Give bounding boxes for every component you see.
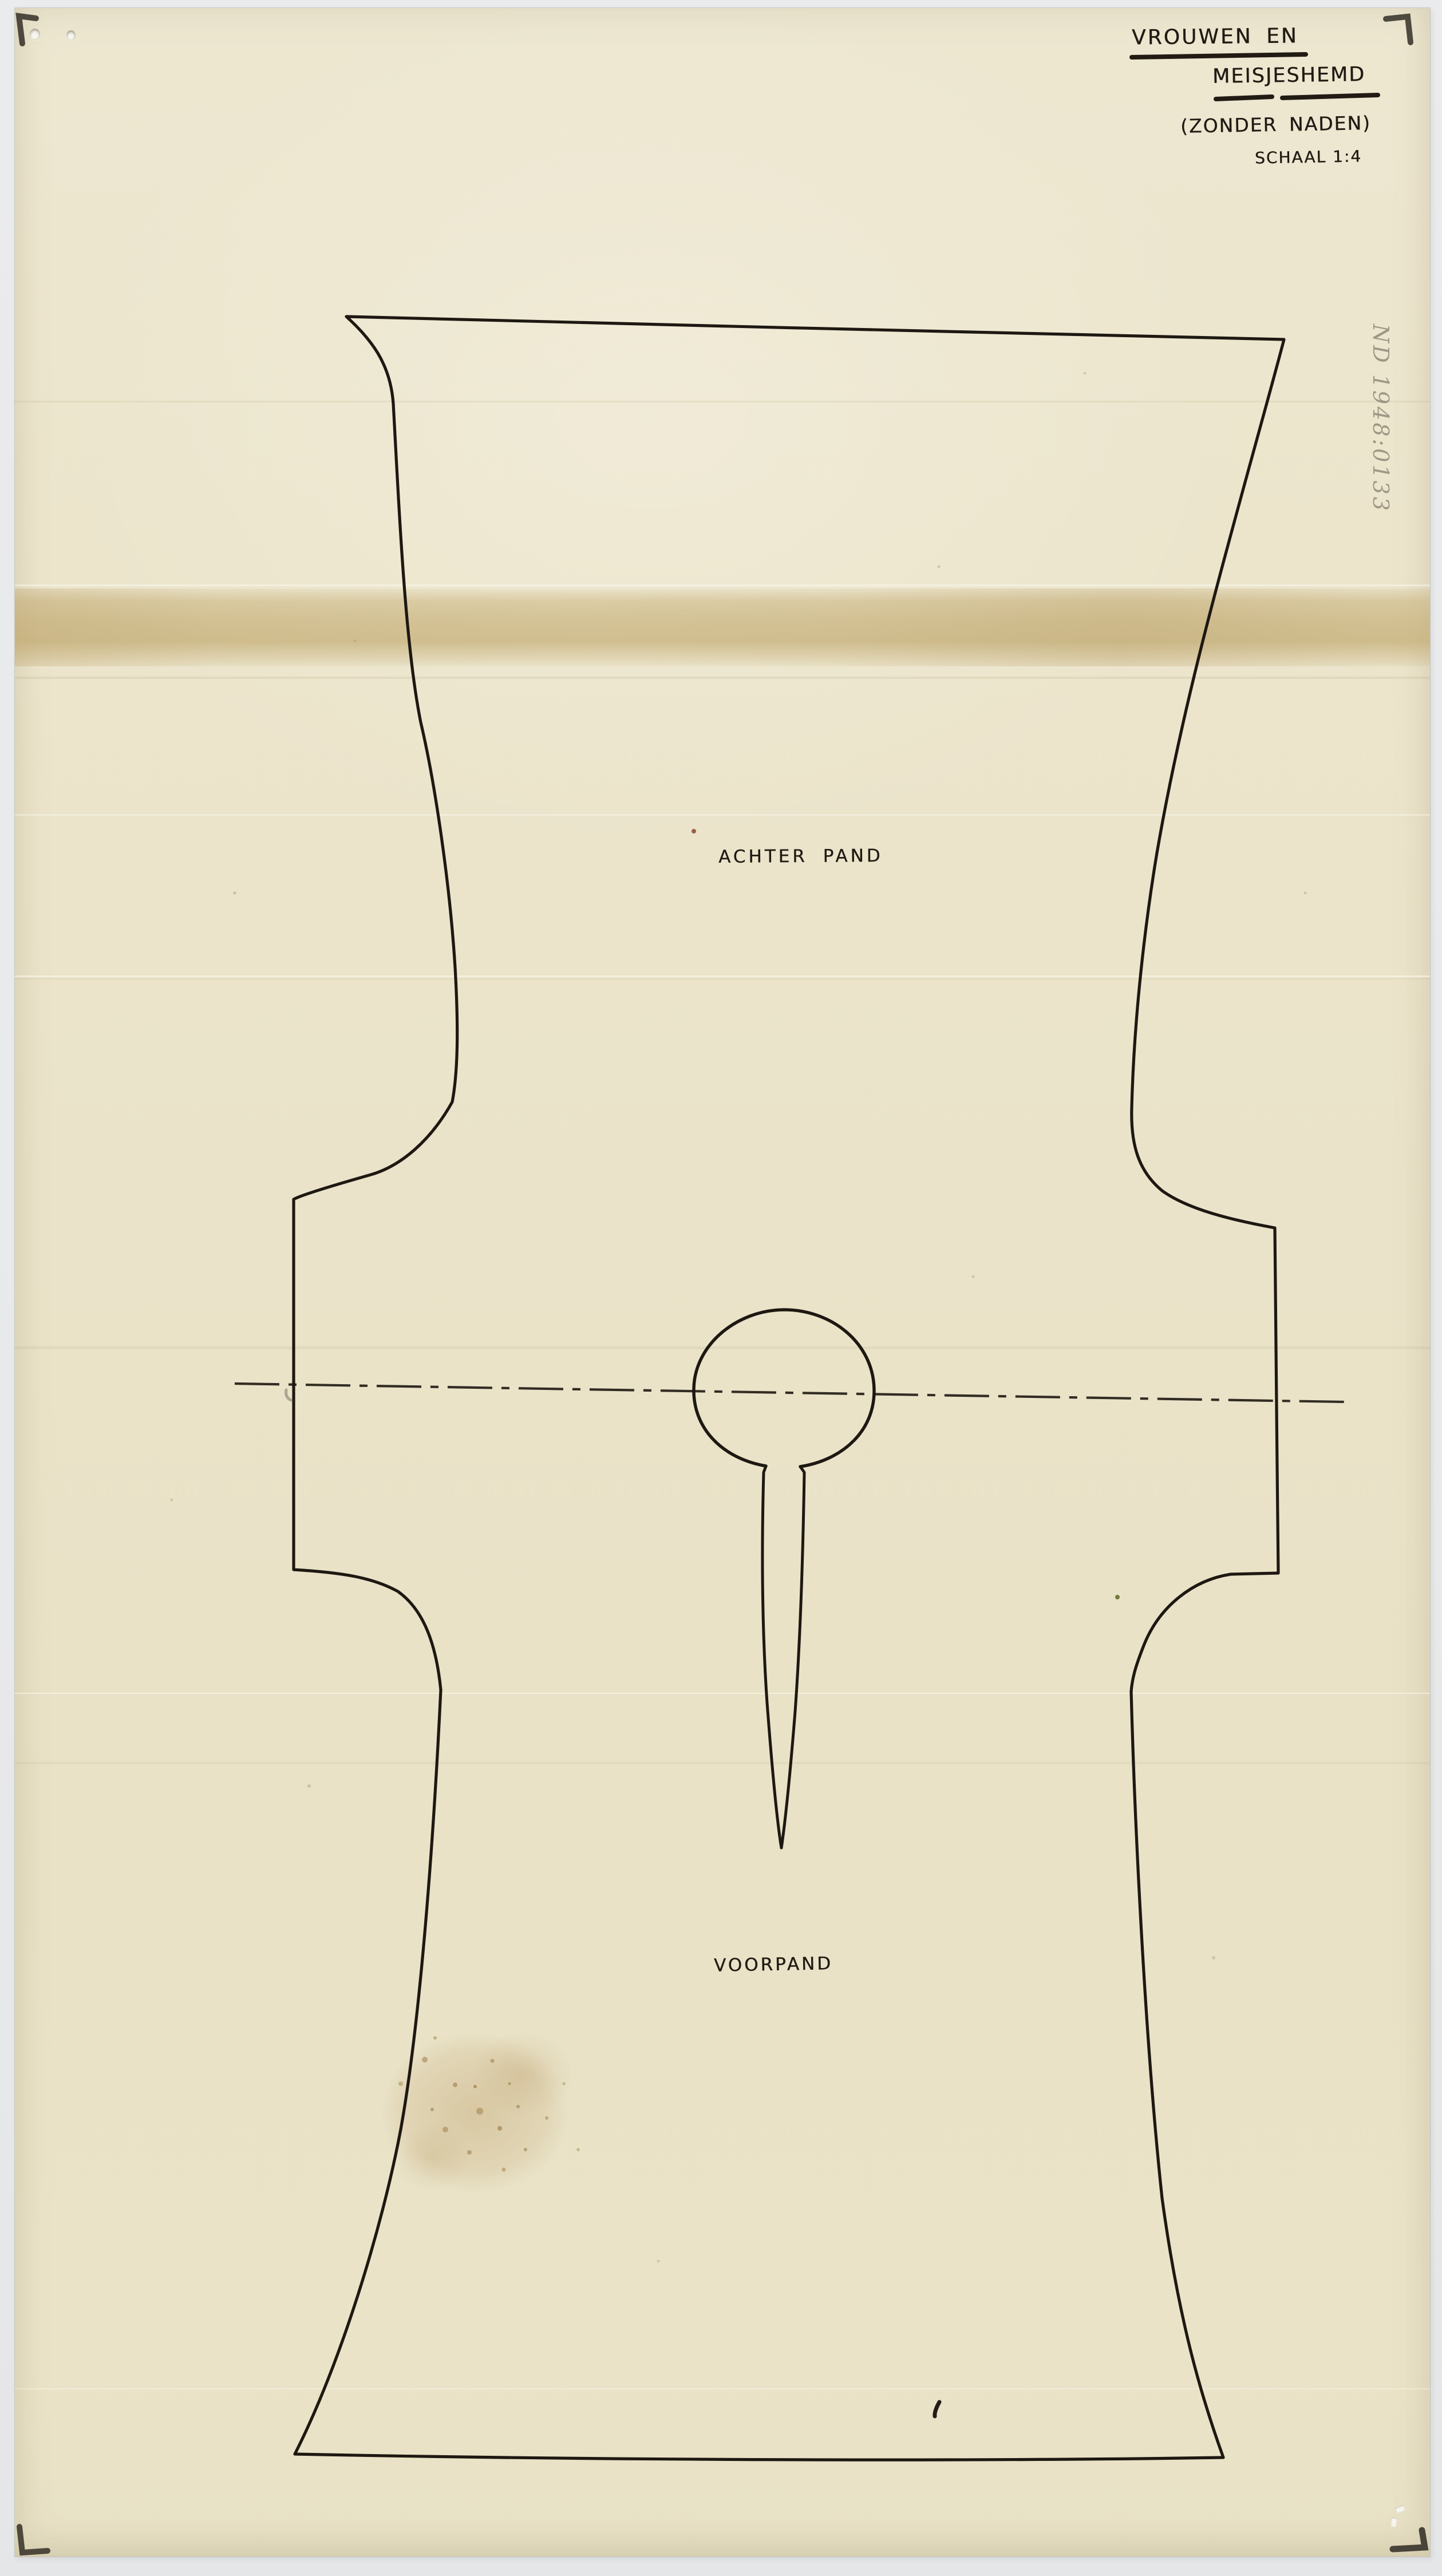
title-line-1: VROUWEN EN <box>1132 24 1298 49</box>
title-line-2: MEISJESHEMD <box>1212 63 1366 88</box>
front-panel-label: VOORPAND <box>714 1953 833 1976</box>
stain-blotch <box>354 1976 617 2234</box>
back-panel-label: ACHTER PAND <box>718 846 883 867</box>
paper-sheet <box>15 8 1430 2557</box>
stain-band <box>15 588 1430 666</box>
subtitle: (ZONDER NADEN) <box>1180 112 1372 137</box>
hole-punch <box>66 30 76 41</box>
scan-stage: VROUWEN EN MEISJESHEMD (ZONDER NADEN) SC… <box>0 0 1442 2576</box>
hole-punch <box>30 29 40 40</box>
inventory-number: ND 1948:0133 <box>1368 324 1393 552</box>
scale-label: SCHAAL 1:4 <box>1255 147 1362 167</box>
